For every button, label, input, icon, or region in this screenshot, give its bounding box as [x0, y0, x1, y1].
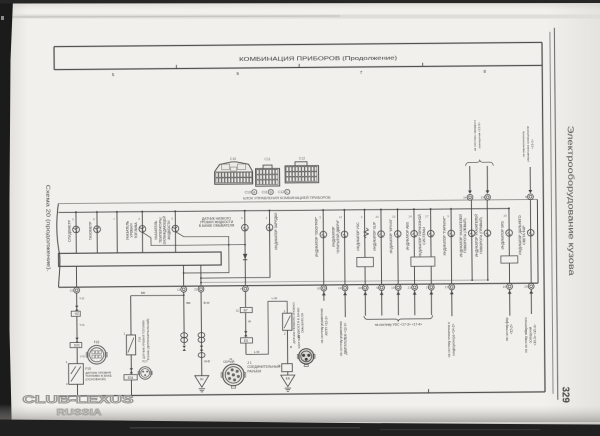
svg-text:15: 15	[70, 289, 74, 293]
svg-text:7: 7	[113, 217, 115, 221]
svg-text:Y-G: Y-G	[79, 323, 85, 327]
svg-text:17: 17	[445, 285, 449, 289]
svg-text:25: 25	[392, 215, 396, 219]
svg-text:5: 5	[171, 217, 173, 221]
svg-text:на систему VSC <17-3> <17-4>: на систему VSC <17-3> <17-4>	[375, 323, 423, 327]
svg-text:8: 8	[525, 195, 527, 199]
svg-text:F17: F17	[142, 360, 148, 364]
svg-text:26: 26	[375, 215, 379, 219]
svg-text:BR: BR	[141, 291, 146, 295]
svg-text:8: 8	[93, 217, 95, 221]
svg-text:13: 13	[481, 195, 485, 199]
svg-text:10: 10	[317, 286, 321, 290]
svg-text:2: 2	[284, 332, 286, 336]
svg-text:5: 5	[376, 286, 378, 290]
svg-text:управления освещением: управления освещением	[526, 126, 530, 162]
svg-text:(ОСНОВНОЙ): (ОСНОВНОЙ)	[85, 377, 105, 381]
svg-text:В БАКЕ (ДОПОЛНИТЕЛЬНЫЙ): В БАКЕ (ДОПОЛНИТЕЛЬНЫЙ)	[146, 318, 150, 360]
svg-text:C10: C10	[245, 190, 251, 194]
svg-text:BR: BR	[186, 301, 191, 305]
svg-text:1: 1	[123, 332, 125, 336]
svg-text:E01: E01	[74, 344, 80, 348]
svg-text:L-W: L-W	[272, 296, 278, 300]
svg-text:B7: B7	[244, 309, 248, 313]
svg-text:ИНДИКАТОР "ODO/TRIP": ИНДИКАТОР "ODO/TRIP"	[315, 216, 319, 257]
svg-text:12: 12	[339, 215, 343, 219]
svg-text:КОМБИНАЦИЯ ПРИБОРОВ (Продолжен: КОМБИНАЦИЯ ПРИБОРОВ (Продолжение)	[239, 55, 397, 62]
svg-text:2: 2	[426, 285, 428, 289]
svg-text:освещения <12-5>: освещения <12-5>	[477, 122, 481, 149]
svg-text:ПОВОРОТА (ЛЕВЫЙ): ПОВОРОТА (ЛЕВЫЙ)	[463, 218, 467, 252]
svg-text:3: 3	[66, 382, 68, 386]
svg-text:<15-2>: <15-2>	[509, 324, 513, 334]
svg-text:ИНДИКАТОР "ПАРКИНГ": ИНДИКАТОР "ПАРКИНГ"	[443, 215, 447, 255]
svg-text:СПИДОМЕТР: СПИДОМЕТР	[68, 219, 72, 241]
svg-text:ИНДИКАТОР VSC: ИНДИКАТОР VSC	[356, 222, 360, 251]
svg-text:Схема 20 (продолжение).: Схема 20 (продолжение).	[44, 185, 51, 273]
svg-text:24: 24	[408, 215, 412, 219]
svg-text:ИНДИКАТОР ABS: ИНДИКАТОР ABS	[406, 221, 410, 250]
svg-text:ПОВОРОТА (ПРАВЫЙ): ПОВОРОТА (ПРАВЫЙ)	[479, 217, 483, 254]
svg-text:<15-2>: <15-2>	[530, 139, 534, 149]
svg-text:5: 5	[319, 215, 321, 219]
svg-text:C12: C12	[278, 190, 284, 194]
svg-text:13: 13	[338, 286, 342, 290]
svg-text:8: 8	[483, 69, 486, 74]
svg-text:Электрооборудование кузова: Электрооборудование кузова	[566, 126, 576, 277]
svg-text:1: 1	[284, 309, 286, 313]
svg-text:ОМЫВАТЕЛЯ: ОМЫВАТЕЛЯ	[300, 313, 304, 333]
svg-text:ТАХОМЕТР: ТАХОМЕТР	[89, 221, 93, 240]
svg-text:EA: EA	[286, 377, 291, 381]
svg-text:W: W	[248, 319, 251, 323]
svg-text:6: 6	[138, 217, 140, 221]
svg-text:6: 6	[236, 71, 239, 76]
svg-text:ТОПЛИВА: ТОПЛИВА	[134, 222, 138, 239]
svg-text:.: .	[258, 190, 259, 194]
svg-text:9: 9	[447, 214, 449, 218]
svg-text:7: 7	[240, 287, 242, 291]
svg-text:L-W: L-W	[254, 350, 260, 354]
svg-text:23: 23	[358, 286, 362, 290]
svg-text:4: 4	[241, 216, 243, 220]
svg-text:СЕРЫЙ: СЕРЫЙ	[223, 360, 234, 364]
svg-text:16: 16	[503, 285, 507, 289]
svg-text:B: B	[270, 190, 272, 194]
svg-text:.: .	[275, 190, 276, 194]
svg-text:29: 29	[503, 214, 507, 218]
svg-text:E01: E01	[128, 376, 134, 380]
svg-text:5: 5	[112, 72, 115, 77]
svg-text:АКПП <12-1>: АКПП <12-1>	[324, 316, 328, 336]
svg-text:11: 11	[236, 308, 239, 312]
svg-text:ИНДИКАТОР SLIP: ИНДИКАТОР SLIP	[373, 221, 377, 250]
svg-text:1: 1	[66, 360, 68, 364]
svg-text:"ОТКРЫТОЙ ДВЕРИ": "ОТКРЫТОЙ ДВЕРИ"	[336, 219, 340, 254]
svg-text:9: 9	[72, 217, 74, 221]
svg-text:F16: F16	[94, 340, 100, 344]
svg-text:C11: C11	[262, 190, 268, 194]
svg-text:E5: E5	[244, 339, 248, 343]
svg-text:1: 1	[266, 216, 268, 220]
svg-text:РАЗЪЕМ: РАЗЪЕМ	[247, 369, 261, 373]
svg-text:<15-3> <15-4>: <15-3> <15-4>	[533, 324, 537, 345]
svg-text:ЧЁРНЫЙ: ЧЁРНЫЙ	[297, 335, 301, 348]
svg-text:21: 21	[408, 286, 412, 290]
svg-text:C12: C12	[299, 157, 305, 161]
svg-text:В БАЧКЕ ОМЫВАТЕЛЯ: В БАЧКЕ ОМЫВАТЕЛЯ	[199, 224, 235, 228]
svg-text:19: 19	[391, 286, 395, 290]
svg-text:ИНДИКАТОР ЗАРЯДКИ: ИНДИКАТОР ЗАРЯДКИ	[274, 212, 278, 250]
svg-text:B: B	[290, 345, 292, 349]
svg-text:W-B: W-B	[204, 359, 210, 363]
svg-text:кондиционера <14-2>: кондиционера <14-2>	[451, 323, 455, 355]
svg-text:IH: IH	[200, 377, 204, 381]
svg-text:ЖИДКОСТИ: ЖИДКОСТИ	[167, 220, 171, 240]
svg-text:B-W: B-W	[204, 301, 210, 305]
svg-text:C10: C10	[230, 157, 236, 161]
svg-text:ИНДИКАТОР "КРУИЗ": ИНДИКАТОР "КРУИЗ"	[389, 218, 393, 253]
svg-text:СИСТЕМЫ: СИСТЕМЫ	[422, 227, 426, 244]
svg-text:C11: C11	[264, 157, 270, 161]
svg-text:H2: H2	[75, 312, 79, 316]
svg-text:11: 11	[177, 288, 180, 292]
svg-text:3: 3	[361, 215, 363, 219]
svg-text:Y-G: Y-G	[80, 354, 86, 358]
svg-text:БЛОК УПРАВЛЕНИЯ КОМБИНАЦИЕЙ ПР: БЛОК УПРАВЛЕНИЯ КОМБИНАЦИЕЙ ПРИБОРОВ	[243, 196, 331, 201]
svg-text:Y-G: Y-G	[79, 296, 85, 300]
svg-text:22: 22	[194, 287, 198, 291]
svg-text:329: 329	[559, 386, 570, 403]
svg-text:ИНДИКАТОР SRS: ИНДИКАТОР SRS	[501, 220, 505, 249]
svg-text:СВЕТА ФАР: СВЕТА ФАР	[522, 225, 526, 245]
svg-text:27: 27	[425, 214, 429, 218]
svg-text:20: 20	[524, 285, 528, 289]
svg-text:14: 14	[463, 196, 467, 200]
svg-text:ДВИГАТЕЛЕМ <12-3>: ДВИГАТЕЛЕМ <12-3>	[343, 323, 347, 355]
svg-text:7: 7	[360, 70, 363, 75]
